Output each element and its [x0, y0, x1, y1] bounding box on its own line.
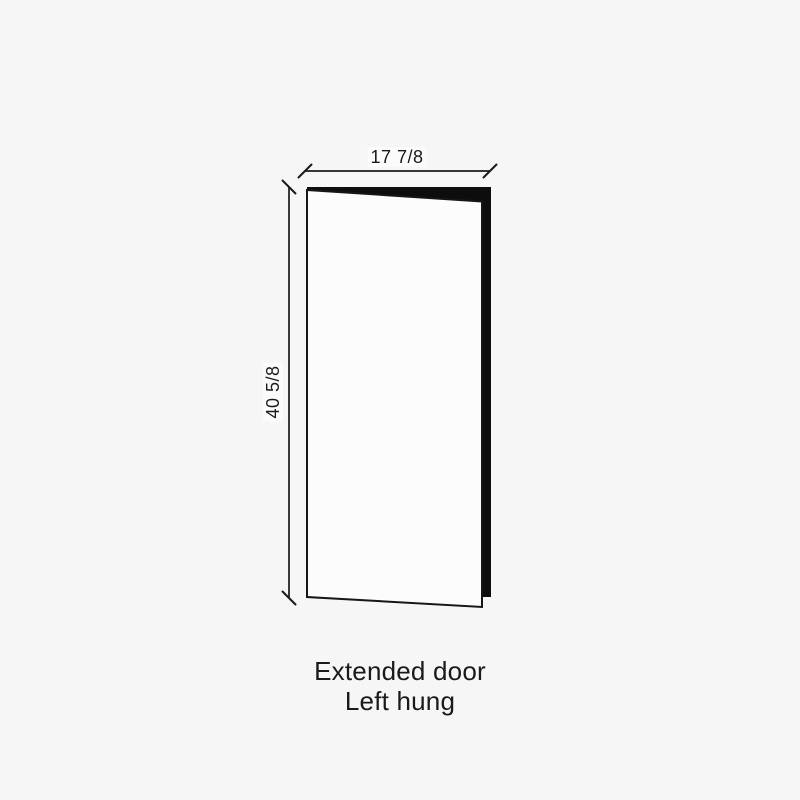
door-diagram: 17 7/8 40 5/8 Extended door Left hung — [0, 0, 800, 800]
height-dimension-label: 40 5/8 — [263, 362, 283, 421]
caption-line-1: Extended door — [0, 656, 800, 686]
height-dimension-line — [283, 181, 296, 605]
door-front-face — [307, 190, 482, 607]
caption: Extended door Left hung — [0, 656, 800, 716]
width-dimension-label: 17 7/8 — [367, 147, 426, 167]
caption-line-2: Left hung — [0, 686, 800, 716]
